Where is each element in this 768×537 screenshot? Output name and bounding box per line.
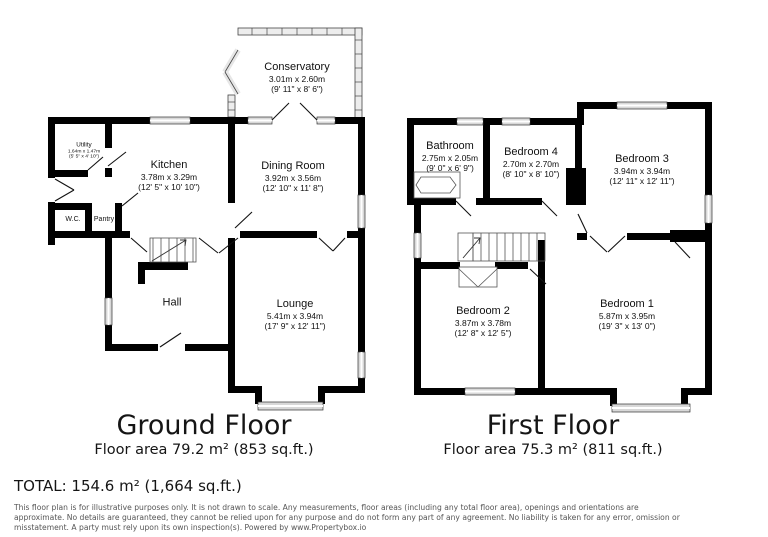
room-label-hall: Hall — [163, 296, 182, 309]
first-floor-staircase — [458, 233, 545, 261]
floorplan-page: Conservatory 3.01m x 2.60m (9' 11" x 8' … — [0, 0, 768, 537]
ground-floor-staircase — [150, 238, 196, 262]
first-floor-area: Floor area 75.3 m² (811 sq.ft.) — [443, 442, 662, 458]
room-label-bedroom-4: Bedroom 4 2.70m x 2.70m (8' 10" x 8' 10"… — [502, 146, 559, 180]
room-label-pantry: Pantry — [94, 216, 114, 224]
wardrobe-fixture — [459, 267, 497, 287]
room-label-bathroom: Bathroom 2.75m x 2.05m (9' 0" x 6' 9") — [422, 140, 478, 174]
room-label-bedroom-1: Bedroom 1 5.87m x 3.95m (19' 3" x 13' 0"… — [598, 298, 655, 332]
room-label-utility: Utility 1.64m x 1.47m (5' 5" x 4' 10") — [68, 141, 100, 160]
bathtub-fixture — [414, 172, 460, 198]
disclaimer-text: This floor plan is for illustrative purp… — [14, 503, 680, 533]
disclaimer-line-2: approximate. No details are guaranteed, … — [14, 513, 680, 523]
ground-floor-title: Ground Floor — [116, 410, 291, 441]
disclaimer-line-3: misstatement. A party must rely upon its… — [14, 523, 680, 533]
room-label-lounge: Lounge 5.41m x 3.94m (17' 9" x 12' 11") — [264, 298, 325, 332]
room-label-bedroom-2: Bedroom 2 3.87m x 3.78m (12' 8" x 12' 5"… — [454, 305, 511, 339]
room-label-kitchen: Kitchen 3.78m x 3.29m (12' 5" x 10' 10") — [138, 159, 200, 193]
room-label-bedroom-3: Bedroom 3 3.94m x 3.94m (12' 11" x 12' 1… — [609, 153, 674, 187]
disclaimer-line-1: This floor plan is for illustrative purp… — [14, 503, 680, 513]
ground-floor-area: Floor area 79.2 m² (853 sq.ft.) — [94, 442, 313, 458]
first-floor-title: First Floor — [487, 410, 620, 441]
room-label-dining-room: Dining Room 3.92m x 3.56m (12' 10" x 11'… — [261, 160, 325, 194]
total-area: TOTAL: 154.6 m² (1,664 sq.ft.) — [14, 477, 242, 495]
room-label-wc: W.C. — [65, 216, 80, 224]
room-label-conservatory: Conservatory 3.01m x 2.60m (9' 11" x 8' … — [264, 61, 329, 95]
